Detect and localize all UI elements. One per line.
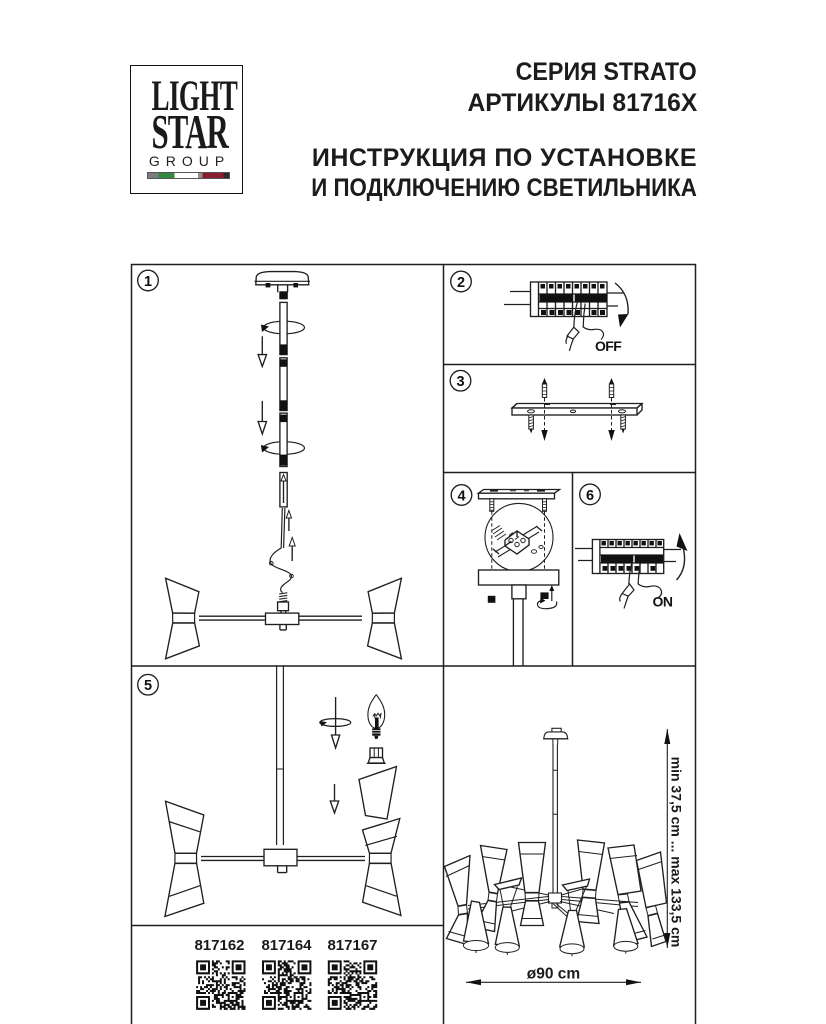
svg-text:5: 5: [144, 678, 152, 694]
svg-text:4: 4: [457, 489, 465, 505]
svg-text:3: 3: [456, 374, 464, 390]
svg-text:817162: 817162: [194, 937, 244, 954]
svg-text:OFF: OFF: [595, 338, 622, 354]
svg-text:2: 2: [457, 275, 465, 291]
svg-text:min 37,5 cm ... max 133,5 cm: min 37,5 cm ... max 133,5 cm: [669, 757, 685, 948]
svg-text:ON: ON: [653, 594, 673, 610]
svg-text:ø90 cm: ø90 cm: [527, 966, 580, 983]
svg-text:817167: 817167: [327, 937, 377, 954]
svg-text:6: 6: [586, 488, 594, 504]
svg-text:817164: 817164: [261, 937, 312, 954]
svg-text:1: 1: [144, 274, 152, 290]
